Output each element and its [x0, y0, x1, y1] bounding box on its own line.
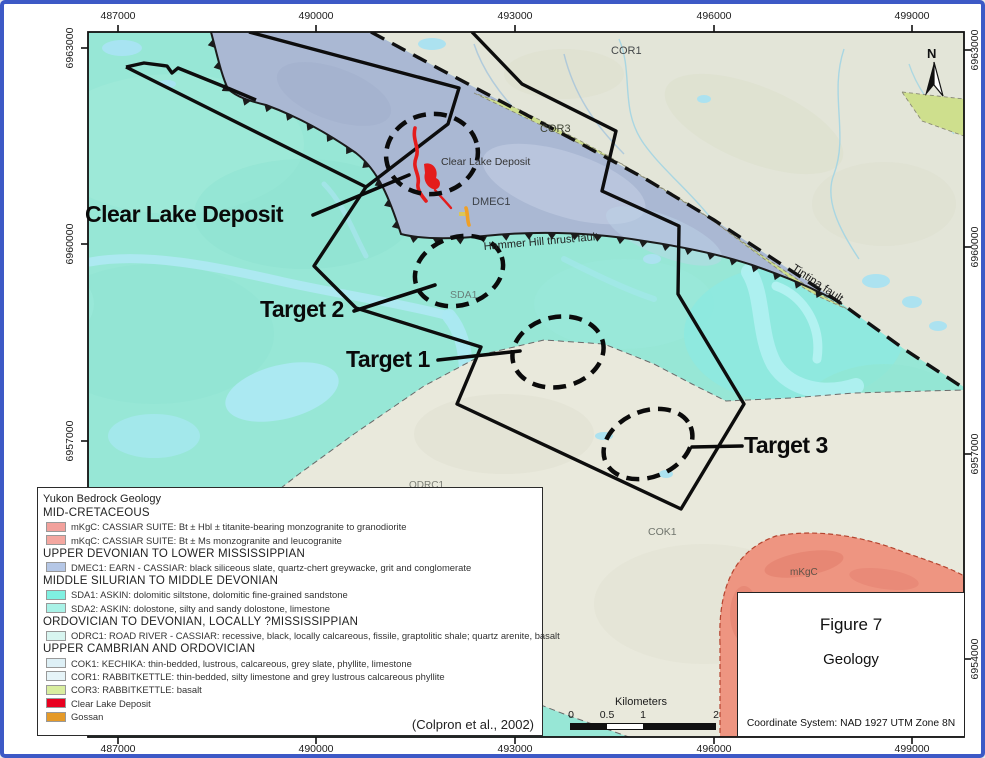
scale-bar-units: Kilometers	[560, 696, 722, 708]
label-cor3: COR3	[540, 123, 571, 135]
axis-label-bottom-3: 493000	[497, 743, 532, 755]
legend-swatch	[46, 631, 66, 641]
axis-label-bottom-1: 487000	[100, 743, 135, 755]
map-figure: COR1 COR3 DMEC1 Clear Lake Deposit SDA1 …	[0, 0, 985, 758]
legend-title: Yukon Bedrock Geology	[43, 492, 536, 506]
legend-header: UPPER DEVONIAN TO LOWER MISSISSIPPIAN	[43, 547, 536, 561]
scale-bar: Kilometers 0 0.5 1 2	[560, 696, 730, 734]
legend-item: mKqC: CASSIAR SUITE: Bt ± Ms monzogranit…	[43, 533, 536, 546]
axis-label-left-1: 6963000	[64, 28, 76, 69]
target-3-leader	[692, 446, 742, 447]
legend-item: COR3: RABBITKETTLE: basalt	[43, 683, 536, 696]
scale-tick: 0	[568, 709, 574, 721]
legend-header: MIDDLE SILURIAN TO MIDDLE DEVONIAN	[43, 574, 536, 588]
axis-label-bottom-5: 499000	[894, 743, 929, 755]
north-label: N	[927, 46, 936, 61]
label-cor1: COR1	[611, 45, 642, 57]
legend-swatch	[46, 671, 66, 681]
legend-swatch	[46, 698, 66, 708]
legend-item: DMEC1: EARN - CASSIAR: black siliceous s…	[43, 561, 536, 574]
legend-swatch	[46, 658, 66, 668]
axis-label-top-1: 487000	[100, 10, 135, 22]
legend-item: ODRC1: ROAD RIVER - CASSIAR: recessive, …	[43, 629, 536, 642]
coordinate-system-note: Coordinate System: NAD 1927 UTM Zone 8N	[738, 718, 964, 729]
axis-label-bottom-2: 490000	[298, 743, 333, 755]
legend-item: Clear Lake Deposit	[43, 697, 536, 710]
legend-swatch	[46, 712, 66, 722]
axis-label-top-4: 496000	[696, 10, 731, 22]
axis-label-top-2: 490000	[298, 10, 333, 22]
axis-label-top-3: 493000	[497, 10, 532, 22]
legend-header: UPPER CAMBRIAN AND ORDOVICIAN	[43, 642, 536, 656]
scale-tick: 0.5	[600, 709, 615, 721]
figure-info-box: Figure 7 Geology Coordinate System: NAD …	[737, 592, 965, 737]
legend-box: Yukon Bedrock Geology MID-CRETACEOUS mKg…	[37, 487, 543, 736]
scale-bar-graphic	[570, 723, 716, 730]
legend-swatch	[46, 685, 66, 695]
figure-title: Geology	[738, 651, 964, 668]
label-mkgc: mKgC	[790, 567, 818, 578]
legend-item: SDA2: ASKIN: dolostone, silty and sandy …	[43, 602, 536, 615]
legend-item: COK1: KECHIKA: thin-bedded, lustrous, ca…	[43, 656, 536, 669]
legend-swatch	[46, 535, 66, 545]
label-clear-lake-map: Clear Lake Deposit	[441, 156, 530, 168]
label-sda1: SDA1	[450, 289, 478, 301]
axis-label-right-3: 6957000	[969, 434, 981, 475]
annotation-target-2: Target 2	[260, 296, 344, 323]
annotation-target-1: Target 1	[346, 346, 430, 373]
scale-tick: 1	[640, 709, 646, 721]
legend-swatch	[46, 522, 66, 532]
axis-label-right-1: 6963000	[969, 30, 981, 71]
legend-header: MID-CRETACEOUS	[43, 506, 536, 520]
axis-label-left-2: 6960000	[64, 224, 76, 265]
legend-swatch	[46, 562, 66, 572]
legend-item: mKgC: CASSIAR SUITE: Bt ± Hbl ± titanite…	[43, 520, 536, 533]
axis-label-right-4: 6954000	[969, 639, 981, 680]
axis-label-right-2: 6960000	[969, 227, 981, 268]
axis-label-top-5: 499000	[894, 10, 929, 22]
scale-tick: 2	[713, 709, 719, 721]
axis-label-bottom-4: 496000	[696, 743, 731, 755]
annotation-target-3: Target 3	[744, 432, 828, 459]
axis-label-left-3: 6957000	[64, 421, 76, 462]
legend-header: ORDOVICIAN TO DEVONIAN, LOCALLY ?MISSISS…	[43, 615, 536, 629]
legend-item: SDA1: ASKIN: dolomitic siltstone, dolomi…	[43, 588, 536, 601]
source-citation: (Colpron et al., 2002)	[412, 717, 534, 732]
label-cok1: COK1	[648, 526, 677, 538]
legend-swatch	[46, 590, 66, 600]
figure-number: Figure 7	[738, 615, 964, 635]
legend-swatch	[46, 603, 66, 613]
annotation-clear-lake: Clear Lake Deposit	[85, 201, 283, 228]
label-dmec1: DMEC1	[472, 196, 511, 208]
legend-item: COR1: RABBITKETTLE: thin-bedded, silty l…	[43, 670, 536, 683]
